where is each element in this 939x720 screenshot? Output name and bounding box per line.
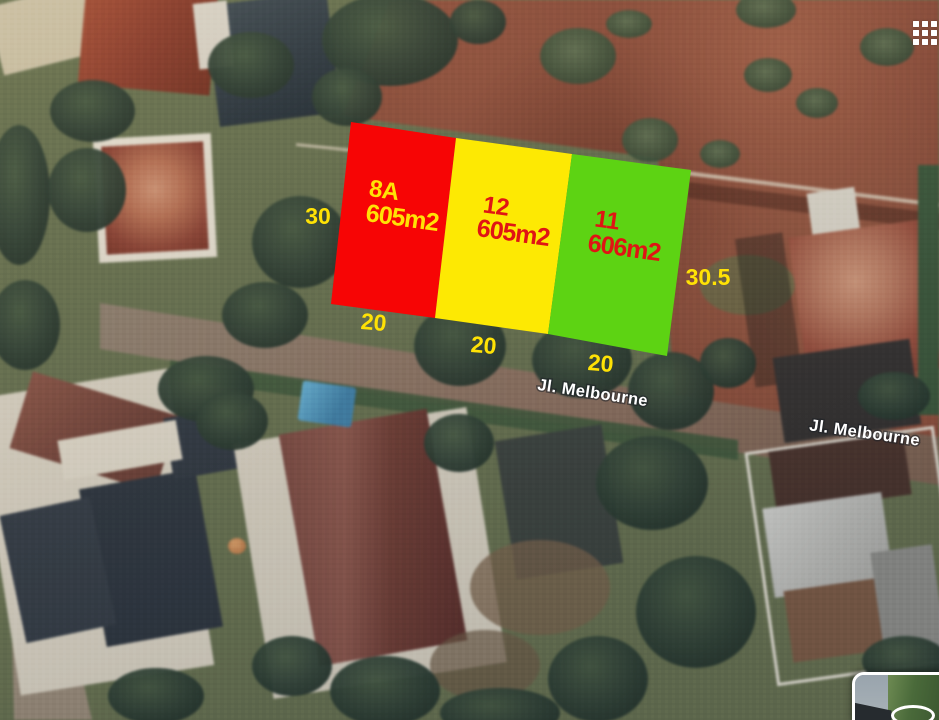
grid-dot [922,39,928,45]
frontage-label-12: 20 [470,331,498,359]
grid-dot [922,21,928,27]
grid-dot [931,39,937,45]
tiles-grid-icon[interactable] [913,21,937,45]
satellite-map: 8A 605m2 12 605m2 11 606m2 30 30.5 20 20… [0,0,939,720]
frontage-label-11: 20 [587,349,615,377]
annotation-overlay: 8A 605m2 12 605m2 11 606m2 30 30.5 20 20… [0,0,939,720]
street-name-label: Jl. Melbourne [536,376,649,410]
grid-dot [931,30,937,36]
dimension-label-right: 30.5 [686,264,731,290]
frontage-label-8a: 20 [360,308,388,336]
grid-dot [931,21,937,27]
street-view-ring-icon [891,705,935,720]
grid-dot [913,39,919,45]
street-name-label: Jl. Melbourne [808,416,921,449]
dimension-label-left: 30 [305,203,331,229]
street-view-thumbnail[interactable] [852,672,939,720]
grid-dot [913,21,919,27]
grid-dot [922,30,928,36]
grid-dot [913,30,919,36]
